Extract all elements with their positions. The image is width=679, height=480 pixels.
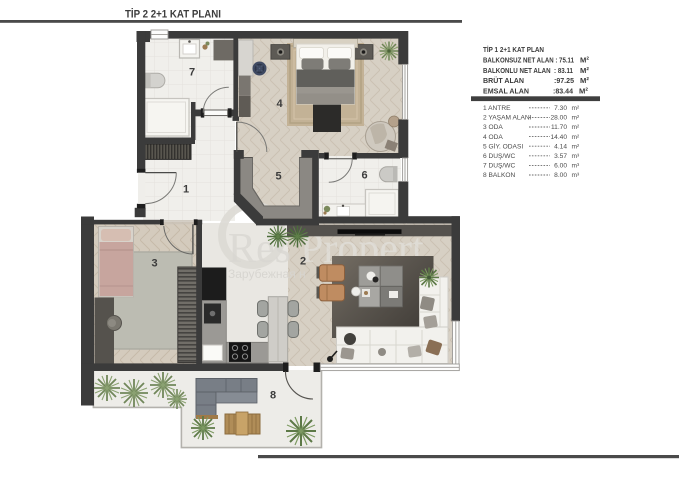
svg-text:4.14: 4.14 — [554, 143, 567, 150]
svg-text:8.00: 8.00 — [554, 172, 567, 179]
svg-text:3.57: 3.57 — [554, 153, 567, 160]
svg-text:M²: M² — [580, 76, 589, 85]
svg-text:6: 6 — [362, 170, 368, 182]
svg-text:7: 7 — [189, 67, 195, 79]
svg-text:5: 5 — [276, 171, 282, 183]
svg-text:m³: m³ — [572, 153, 580, 160]
svg-text:BALKONSUZ NET ALAN : 75.11: BALKONSUZ NET ALAN : 75.11 — [483, 56, 575, 65]
svg-text:5 GİY. ODASI: 5 GİY. ODASI — [483, 141, 523, 150]
svg-text:M²: M² — [580, 56, 589, 65]
svg-text:2 YAŞAM ALANI: 2 YAŞAM ALANI — [483, 115, 532, 122]
svg-text:M²: M² — [580, 66, 589, 75]
svg-text:M²: M² — [579, 86, 588, 95]
svg-text:TİP 2 2+1 KAT PLANI: TİP 2 2+1 KAT PLANI — [125, 8, 221, 21]
svg-text:m²: m² — [572, 143, 580, 150]
svg-text:BALKONLU NET ALAN : 83.11: BALKONLU NET ALAN : 83.11 — [483, 66, 574, 75]
svg-text:8 BALKON: 8 BALKON — [483, 172, 515, 179]
svg-text:7 DUŞ/WC: 7 DUŞ/WC — [483, 163, 515, 170]
svg-text:4 ODA: 4 ODA — [483, 134, 503, 141]
svg-text:m²: m² — [572, 124, 580, 131]
svg-text:7.30: 7.30 — [554, 105, 567, 112]
svg-text:2: 2 — [300, 256, 306, 268]
svg-text:3 ODA: 3 ODA — [483, 124, 503, 131]
svg-text:14.40: 14.40 — [550, 134, 567, 141]
svg-text:1 ANTRE: 1 ANTRE — [483, 105, 511, 112]
svg-text:1: 1 — [183, 184, 189, 196]
svg-text:TİP 1 2+1 KAT PLAN: TİP 1 2+1 KAT PLAN — [483, 45, 544, 54]
svg-text:28.00: 28.00 — [550, 115, 567, 122]
svg-text:BRÜT ALAN: BRÜT ALAN — [483, 76, 524, 85]
svg-text:6.00: 6.00 — [554, 163, 567, 170]
svg-text::97.25: :97.25 — [554, 76, 575, 85]
svg-text:3: 3 — [152, 258, 158, 270]
svg-text::83.44: :83.44 — [553, 86, 574, 95]
svg-text:11.70: 11.70 — [551, 124, 567, 131]
svg-text:EMSAL ALAN: EMSAL ALAN — [483, 86, 529, 95]
svg-text:m²: m² — [572, 115, 580, 122]
svg-text:m²: m² — [572, 105, 580, 112]
svg-text:4: 4 — [277, 98, 284, 110]
svg-text:m²: m² — [572, 134, 580, 141]
svg-text:m³: m³ — [572, 163, 580, 170]
svg-text:8: 8 — [270, 390, 276, 402]
svg-text:m³: m³ — [572, 172, 580, 179]
svg-text:Зарубежная н: Зарубежная н — [228, 267, 306, 281]
svg-text:6 DUŞ/WC: 6 DUŞ/WC — [483, 153, 515, 160]
